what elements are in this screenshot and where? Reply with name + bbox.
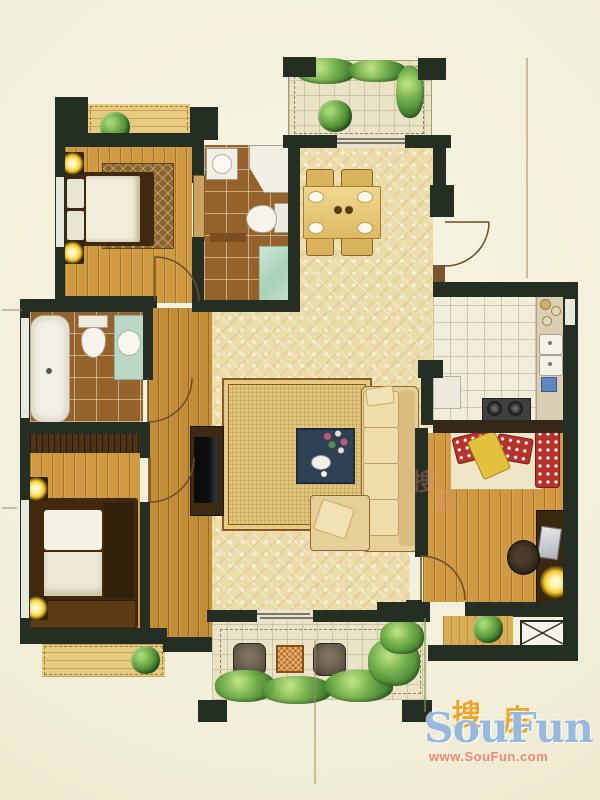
ghost-watermark-hanzi-right: 房 (434, 482, 458, 517)
floor-plan-canvas: 搜 房 搜 房 SouFun www.SouFun.com (0, 0, 600, 800)
door-arc-se-bedroom (421, 556, 465, 600)
door-arc-entry (445, 222, 489, 266)
door-arc-west-bedroom (150, 458, 194, 502)
elevator-x-icon (522, 622, 563, 644)
watermark-url: www.SouFun.com (429, 749, 548, 764)
door-arc-bathroom (148, 378, 192, 422)
door-arc-master-bedroom (155, 257, 199, 301)
watermark-brand: SouFun (424, 704, 593, 752)
plan-lines-overlay (0, 0, 600, 800)
sliding-door-north-balcony (337, 139, 407, 143)
sliding-door-terrace (257, 614, 313, 618)
ghost-watermark-hanzi-left: 搜 (412, 462, 436, 497)
